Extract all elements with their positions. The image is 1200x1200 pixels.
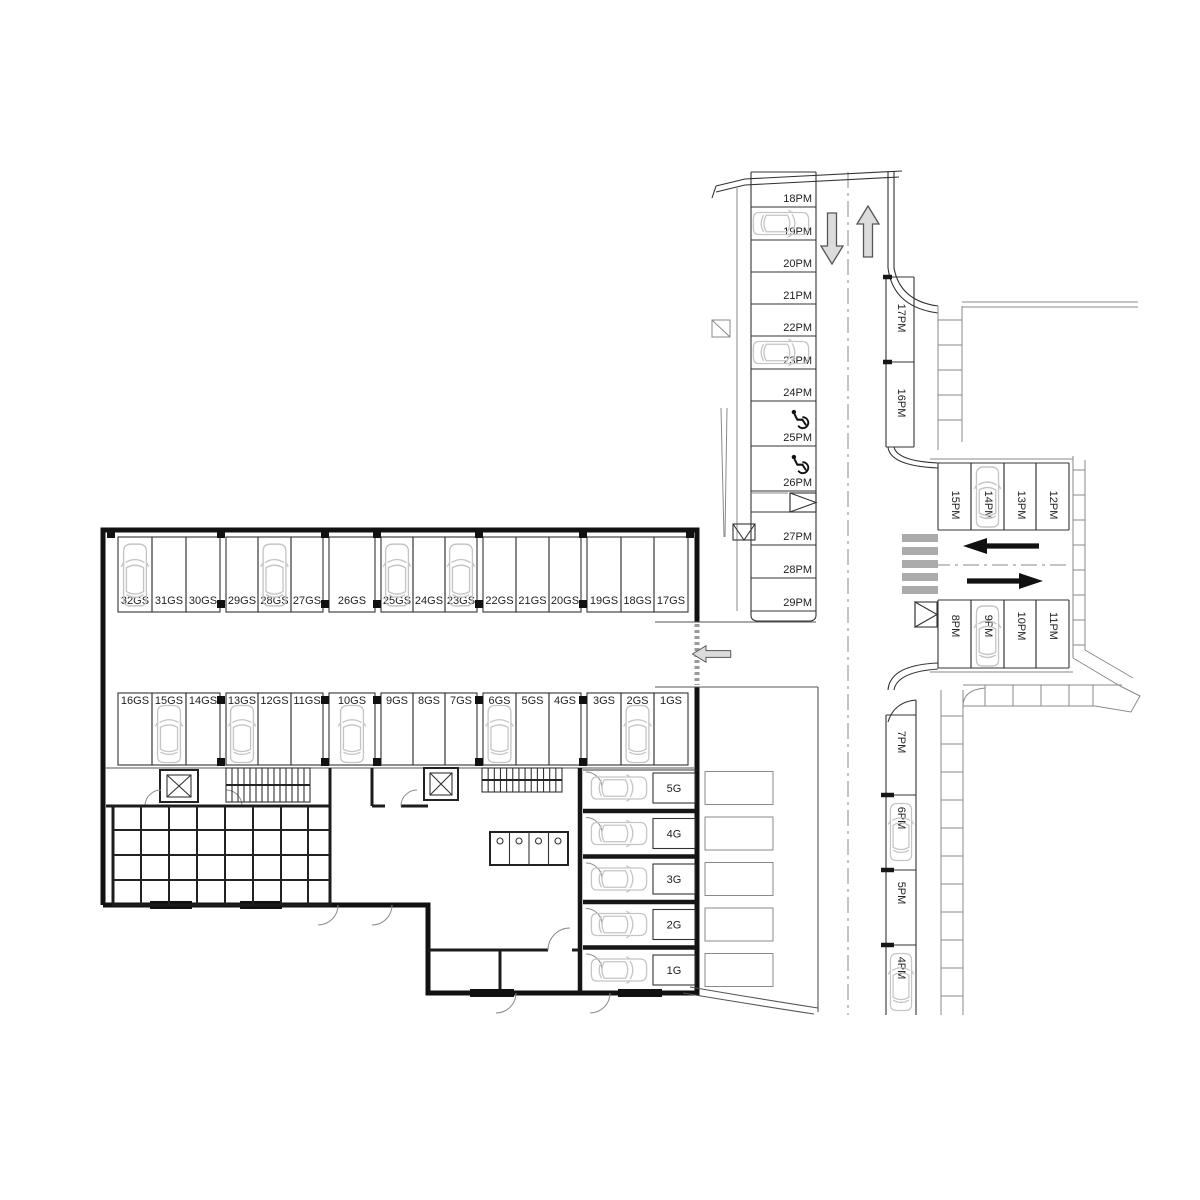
parked-car	[486, 706, 514, 763]
column	[321, 758, 329, 766]
column	[321, 530, 329, 538]
stall-label: 5GS	[521, 695, 543, 707]
stall-label: 26PM	[783, 477, 812, 489]
stall-label: 17GS	[657, 595, 685, 607]
street-stall-17PM: 17PM	[883, 277, 914, 332]
stall-label: 5G	[667, 783, 682, 795]
wheelchair-icon	[792, 455, 809, 473]
stall-label: 14GS	[189, 695, 217, 707]
parked-car	[624, 706, 652, 763]
east-end-wedge	[1095, 686, 1140, 712]
stall-label: 2G	[667, 920, 682, 932]
stall-label: 5PM	[895, 882, 907, 905]
main-street-north-arrow	[857, 206, 879, 257]
parking-stall-18GS: 18GS	[621, 537, 654, 612]
parking-stall-20GS: 20GS	[549, 537, 581, 612]
outdoor-pad	[705, 772, 773, 805]
street-stall-11PM: 11PM	[1036, 600, 1069, 668]
crosswalk-stripe	[902, 586, 938, 594]
south-band-vertical	[941, 690, 963, 1015]
crosswalk-stripe	[902, 534, 938, 542]
parking-stall-19GS: 19GS	[587, 537, 621, 612]
stall-29-bottom-curb	[751, 611, 816, 621]
parking-stall-24GS: 24GS	[413, 537, 445, 612]
outdoor-pad	[705, 908, 773, 941]
parked-car	[591, 911, 646, 938]
driveway-curve	[683, 987, 818, 1014]
street-stall-13PM: 13PM	[1004, 463, 1036, 530]
column	[217, 696, 225, 704]
elevator-1	[160, 770, 198, 802]
column	[321, 696, 329, 704]
column	[579, 530, 587, 538]
south-band-corner	[963, 688, 985, 706]
parking-stall-9GS: 9GS	[381, 693, 413, 765]
stall-label: 1G	[667, 965, 682, 977]
stall-label: 16GS	[121, 695, 149, 707]
sill-3	[470, 989, 514, 997]
stall-label: 11PM	[1047, 612, 1059, 640]
entrance-apron	[655, 622, 818, 687]
parking-stall-11GS: 11GS	[291, 693, 323, 765]
ramp-marker-west-sidewalk	[733, 524, 755, 540]
parking-stall-30GS: 30GS	[186, 537, 220, 612]
stall-label: 13PM	[1015, 491, 1027, 520]
street-stall-26PM: 26PM	[751, 446, 816, 491]
generated-plan-content: 32GS31GS30GS29GS28GS27GS26GS25GS24GS23GS…	[107, 172, 1073, 1011]
north-band	[938, 306, 962, 450]
stall-label: 12GS	[260, 695, 288, 707]
stall-label: 3G	[667, 874, 682, 886]
parking-stall-5GS: 5GS	[516, 693, 549, 765]
stall-label: 3GS	[593, 695, 615, 707]
sidewalk-lines-26pm	[751, 493, 788, 512]
stall-label: 22PM	[783, 322, 812, 334]
stall-label: 30GS	[189, 595, 217, 607]
stall-label: 7PM	[895, 731, 907, 754]
parking-stall-26GS: 26GS	[329, 537, 375, 612]
stall-label: 18PM	[783, 193, 812, 205]
south-band-horizontal	[963, 685, 1122, 706]
stall-label: 27GS	[293, 595, 321, 607]
stall-label: 24GS	[415, 595, 443, 607]
parking-stall-1GS: 1GS	[654, 693, 688, 765]
column	[475, 696, 483, 704]
parking-stall-14GS: 14GS	[186, 693, 220, 765]
stall-label: 9GS	[386, 695, 408, 707]
stall-label: 27PM	[783, 531, 812, 543]
parking-stall-4GS: 4GS	[549, 693, 581, 765]
sill-4	[618, 989, 662, 997]
junction-nw-arc	[888, 447, 938, 468]
staircase-2	[482, 768, 562, 792]
crosswalk-stripe	[902, 573, 938, 581]
wheelchair-icon	[792, 410, 809, 428]
street-stall-10PM: 10PM	[1004, 600, 1036, 668]
stall-label: 18GS	[623, 595, 651, 607]
column	[373, 758, 381, 766]
street-stall-7PM: 7PM	[886, 715, 916, 753]
parked-car	[338, 706, 366, 763]
street-stall-15PM: 15PM	[938, 463, 971, 530]
column	[579, 696, 587, 704]
column	[579, 758, 587, 766]
street-stall-21PM: 21PM	[751, 272, 816, 304]
east-end-band	[1073, 456, 1133, 686]
stall-label: 20PM	[783, 258, 812, 270]
column	[686, 530, 694, 538]
stall-label: 10PM	[1015, 612, 1027, 641]
core-partition	[330, 768, 372, 806]
floor-plan-canvas: 32GS31GS30GS29GS28GS27GS26GS25GS24GS23GS…	[0, 0, 1200, 1200]
storage-room-grid	[113, 806, 330, 905]
elevator-2	[424, 768, 458, 800]
street-stall-16PM: 16PM	[883, 362, 914, 417]
parked-car	[591, 820, 646, 847]
parking-stall-3GS: 3GS	[587, 693, 621, 765]
street-stall-27PM: 27PM	[751, 512, 816, 545]
street-stall-20PM: 20PM	[751, 240, 816, 272]
column	[321, 600, 329, 608]
parking-stall-29GS: 29GS	[226, 537, 258, 612]
stall-label: 4G	[667, 829, 682, 841]
traffic-arrows	[693, 206, 1044, 662]
column	[373, 696, 381, 704]
parked-car	[591, 957, 646, 984]
street-stall-28PM: 28PM	[751, 545, 816, 578]
column	[217, 758, 225, 766]
building-outer-wall-west-north	[103, 530, 697, 905]
west-sidewalk	[721, 186, 751, 611]
parked-car	[591, 775, 646, 802]
stall-label: 15PM	[949, 491, 961, 520]
lower-room-walls	[428, 950, 580, 993]
lower-room-door	[548, 928, 570, 950]
parked-car	[228, 706, 256, 763]
stall-label: 29GS	[228, 595, 256, 607]
street-stall-24PM: 24PM	[751, 369, 816, 401]
ramp-marker-sidewalk-box	[712, 320, 730, 337]
exterior-doors	[145, 790, 610, 1013]
stall-label: 31GS	[155, 595, 183, 607]
column	[475, 758, 483, 766]
ramp-marker-junction	[915, 602, 937, 627]
parking-stall-7GS: 7GS	[445, 693, 477, 765]
stall-label: 8GS	[418, 695, 440, 707]
column	[217, 530, 225, 538]
column	[579, 600, 587, 608]
junction-sw-arc	[888, 663, 938, 690]
street-stall-12PM: 12PM	[1036, 463, 1069, 530]
stall-label: 24PM	[783, 387, 812, 399]
crosswalk-stripe	[902, 547, 938, 555]
street-stall-29PM: 29PM	[751, 578, 816, 611]
stall-label: 12PM	[1047, 491, 1059, 520]
column	[373, 600, 381, 608]
street-stall-22PM: 22PM	[751, 304, 816, 336]
crosswalk-stripe	[902, 560, 938, 568]
floor-plan: 32GS31GS30GS29GS28GS27GS26GS25GS24GS23GS…	[0, 0, 1200, 1200]
side-street-west-arrow	[963, 538, 1039, 554]
parked-car	[591, 866, 646, 893]
column	[475, 600, 483, 608]
ramp-marker-26pm	[790, 493, 816, 512]
parking-stall-27GS: 27GS	[291, 537, 323, 612]
stall-label: 21GS	[518, 595, 546, 607]
stall-label: 1GS	[660, 695, 682, 707]
street-stall-8PM: 8PM	[938, 600, 971, 668]
stall-label: 21PM	[783, 290, 812, 302]
stall-label: 16PM	[895, 389, 907, 418]
parking-stall-17GS: 17GS	[654, 537, 688, 612]
stall-label: 25PM	[783, 432, 812, 444]
parking-stall-21GS: 21GS	[516, 537, 549, 612]
outdoor-pad	[705, 954, 773, 987]
column	[373, 530, 381, 538]
outdoor-pad	[705, 863, 773, 896]
north-lot-line	[962, 302, 1138, 307]
stall-label: 19GS	[590, 595, 618, 607]
stall-label: 28PM	[783, 564, 812, 576]
stall-label: 8PM	[949, 615, 961, 638]
street-stall-25PM: 25PM	[751, 401, 816, 446]
column	[475, 530, 483, 538]
column	[107, 530, 115, 538]
bathroom-block	[490, 832, 568, 865]
main-street-south-arrow	[821, 213, 843, 264]
stall-label: 29PM	[783, 597, 812, 609]
stall-label: 4GS	[554, 695, 576, 707]
outdoor-pad	[705, 817, 773, 850]
stall-label: 17PM	[895, 304, 907, 333]
column	[217, 600, 225, 608]
stall-label: 26GS	[338, 595, 366, 607]
east-curb-north	[888, 172, 938, 313]
parking-stall-8GS: 8GS	[413, 693, 445, 765]
stall-label: 22GS	[485, 595, 513, 607]
stall-label: 20GS	[551, 595, 579, 607]
parking-stall-22GS: 22GS	[483, 537, 516, 612]
side-street-east-arrow	[967, 573, 1043, 589]
parked-car	[155, 706, 183, 763]
parking-stall-31GS: 31GS	[152, 537, 186, 612]
parking-stall-12GS: 12GS	[258, 693, 291, 765]
stall-label: 7GS	[450, 695, 472, 707]
parking-stall-16GS: 16GS	[118, 693, 152, 765]
stall-label: 11GS	[293, 695, 320, 707]
